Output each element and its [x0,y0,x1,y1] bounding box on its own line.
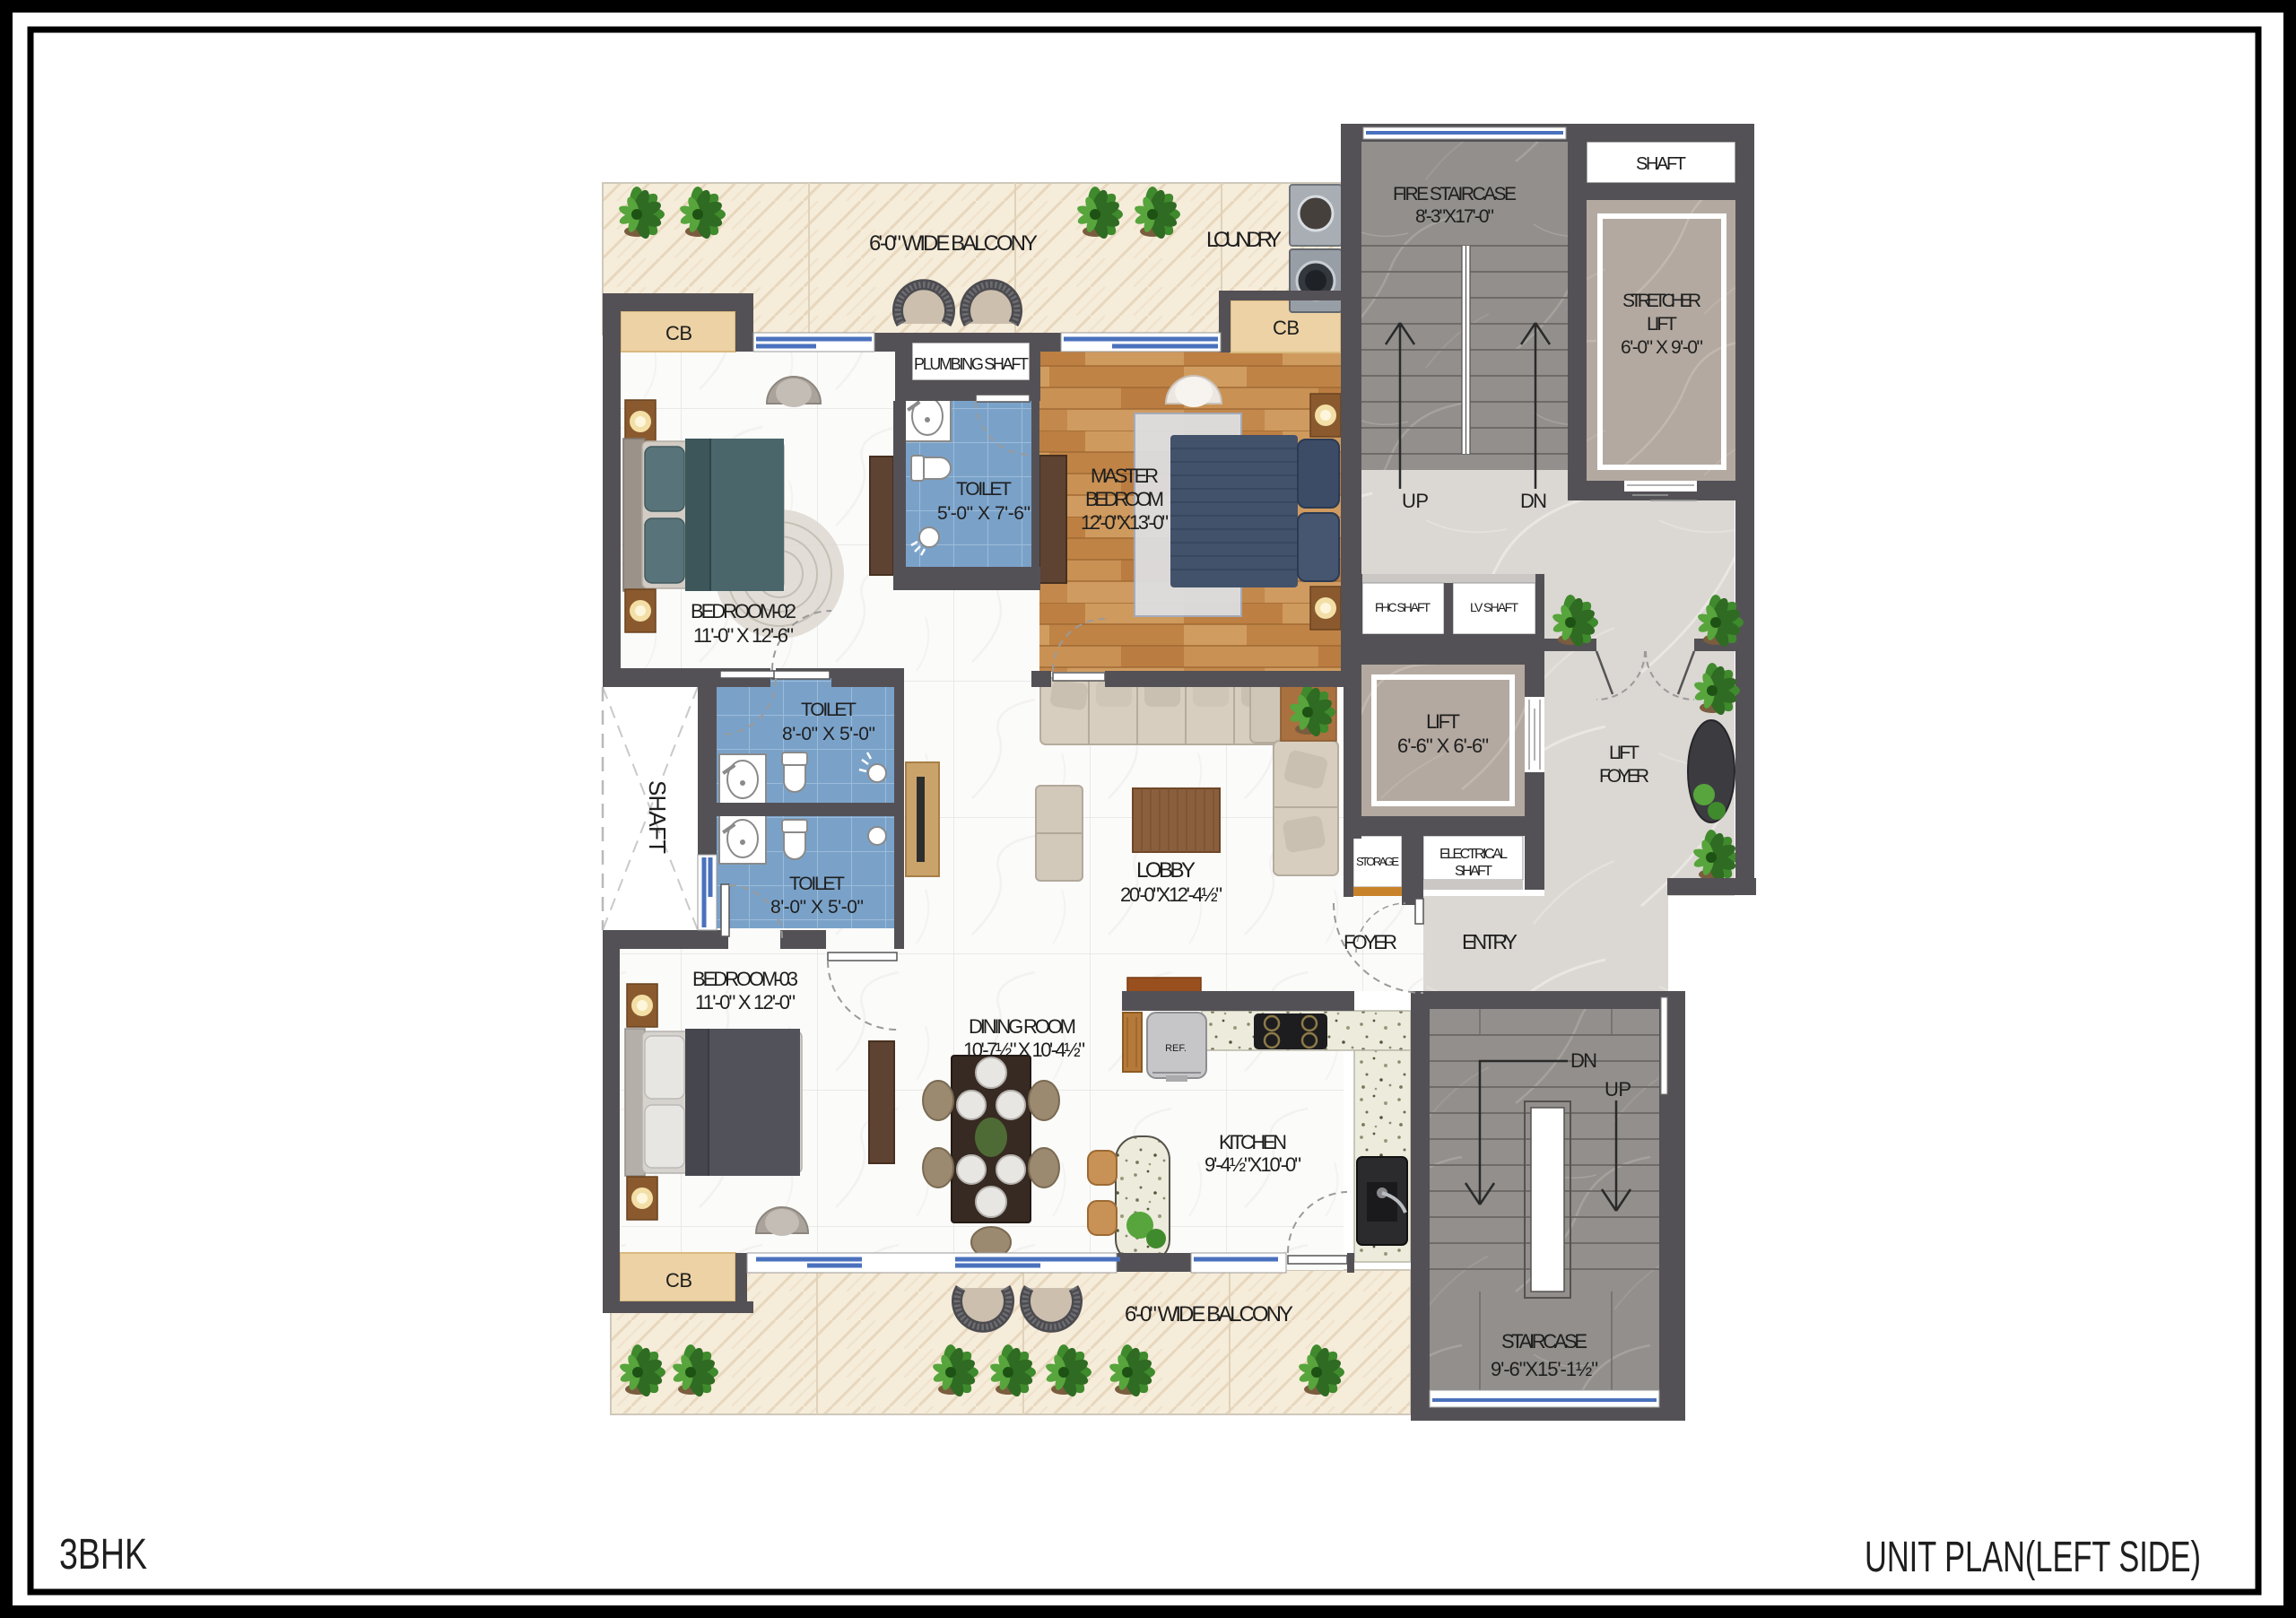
svg-text:ENTRY: ENTRY [1462,930,1518,953]
svg-text:8'-0" X 5'-0": 8'-0" X 5'-0" [782,724,875,744]
svg-text:UP: UP [1402,490,1429,512]
svg-text:12'-0"X13'-0": 12'-0"X13'-0" [1081,511,1169,534]
svg-text:FOYER: FOYER [1599,766,1649,787]
svg-text:CB: CB [665,1269,692,1292]
svg-text:9'-4½"X10'-0": 9'-4½"X10'-0" [1205,1153,1301,1176]
svg-text:6'-0" WIDE BALCONY: 6'-0" WIDE BALCONY [869,231,1038,256]
svg-text:FIRE STAIRCASE: FIRE STAIRCASE [1393,184,1517,204]
svg-text:LIFT: LIFT [1426,710,1460,733]
svg-text:LOBBY: LOBBY [1136,858,1196,883]
svg-text:UNIT PLAN(LEFT SIDE): UNIT PLAN(LEFT SIDE) [1865,1534,2201,1581]
svg-text:CB: CB [665,322,692,344]
svg-text:ELECTRICAL: ELECTRICAL [1439,847,1508,862]
svg-text:DINING ROOM: DINING ROOM [969,1015,1076,1038]
svg-text:TOILET: TOILET [956,479,1012,500]
svg-text:STORAGE: STORAGE [1356,855,1399,868]
svg-text:STRETCHER: STRETCHER [1622,291,1701,311]
svg-text:LIFT: LIFT [1609,743,1639,763]
svg-text:6'-6" X 6'-6": 6'-6" X 6'-6" [1397,735,1489,757]
svg-text:REF.: REF. [1165,1043,1187,1054]
svg-text:LOUNDRY: LOUNDRY [1206,228,1282,252]
svg-text:11'-0" X 12'-6": 11'-0" X 12'-6" [693,624,794,647]
svg-text:8'-0" X 5'-0": 8'-0" X 5'-0" [770,897,864,918]
svg-text:3BHK: 3BHK [59,1531,147,1579]
svg-text:SHAFT: SHAFT [1636,154,1686,174]
svg-text:MASTER: MASTER [1091,465,1159,487]
svg-text:LV SHAFT: LV SHAFT [1470,600,1518,614]
svg-text:6'-0" X 9'-0": 6'-0" X 9'-0" [1621,337,1703,358]
svg-text:6'-0" WIDE BALCONY: 6'-0" WIDE BALCONY [1125,1302,1293,1327]
svg-text:SHAFT: SHAFT [644,780,671,854]
svg-text:5'-0" X 7'-6": 5'-0" X 7'-6" [937,503,1031,524]
svg-text:KITCHEN: KITCHEN [1219,1131,1287,1153]
svg-text:TOILET: TOILET [789,874,845,894]
svg-text:PLUMBING SHAFT: PLUMBING SHAFT [914,355,1029,373]
svg-text:UP: UP [1605,1078,1631,1100]
svg-text:BEDROOM-03: BEDROOM-03 [692,968,798,990]
svg-text:SHAFT: SHAFT [1455,864,1492,879]
svg-text:FHC SHAFT: FHC SHAFT [1375,600,1431,614]
svg-text:BEDROOM-02: BEDROOM-02 [691,600,796,622]
svg-text:STAIRCASE: STAIRCASE [1501,1330,1587,1353]
svg-text:8'-3"X17'-0": 8'-3"X17'-0" [1415,206,1494,227]
svg-text:DN: DN [1570,1049,1597,1072]
svg-text:TOILET: TOILET [801,700,857,720]
svg-text:BEDROOM: BEDROOM [1085,488,1164,510]
svg-text:11'-0" X 12'-0": 11'-0" X 12'-0" [695,991,796,1013]
svg-text:LIFT: LIFT [1647,314,1677,335]
svg-text:10'-7½" X 10'-4½": 10'-7½" X 10'-4½" [963,1039,1085,1061]
svg-text:9'-6"X15'-1½": 9'-6"X15'-1½" [1491,1358,1598,1380]
svg-text:20'-0"X12'-4½": 20'-0"X12'-4½" [1120,883,1222,906]
svg-text:CB: CB [1273,317,1300,339]
svg-text:DN: DN [1520,490,1547,512]
svg-text:FOYER: FOYER [1344,931,1397,953]
